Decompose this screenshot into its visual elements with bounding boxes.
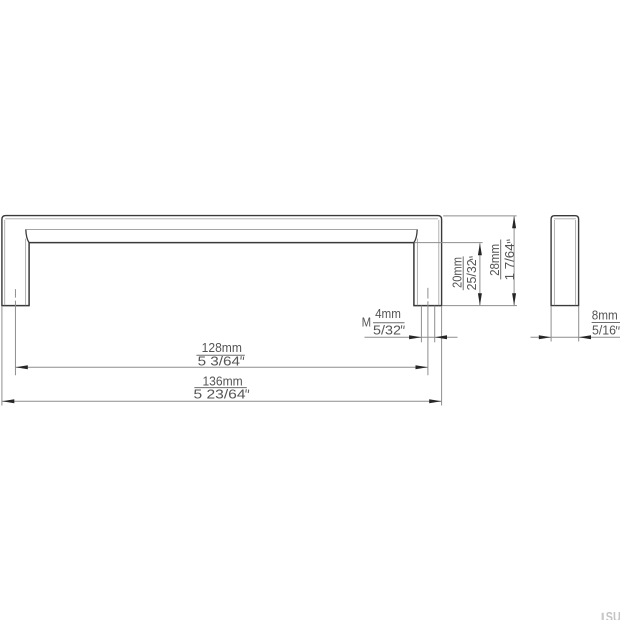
svg-text:25/32: 25/32 bbox=[464, 259, 479, 290]
svg-text:28mm: 28mm bbox=[487, 244, 502, 276]
svg-text:4mm: 4mm bbox=[375, 306, 401, 321]
svg-text:1 7/64: 1 7/64 bbox=[502, 243, 517, 280]
svg-text:5/32: 5/32 bbox=[373, 322, 401, 337]
svg-text:SU: SU bbox=[606, 610, 620, 620]
svg-text:5/16: 5/16 bbox=[592, 323, 616, 338]
svg-text:20mm: 20mm bbox=[449, 257, 464, 288]
svg-text:5 3/64: 5 3/64 bbox=[198, 353, 240, 368]
svg-text:8mm: 8mm bbox=[592, 307, 618, 322]
svg-text:5 23/64: 5 23/64 bbox=[194, 386, 246, 401]
svg-text:M: M bbox=[362, 314, 372, 329]
